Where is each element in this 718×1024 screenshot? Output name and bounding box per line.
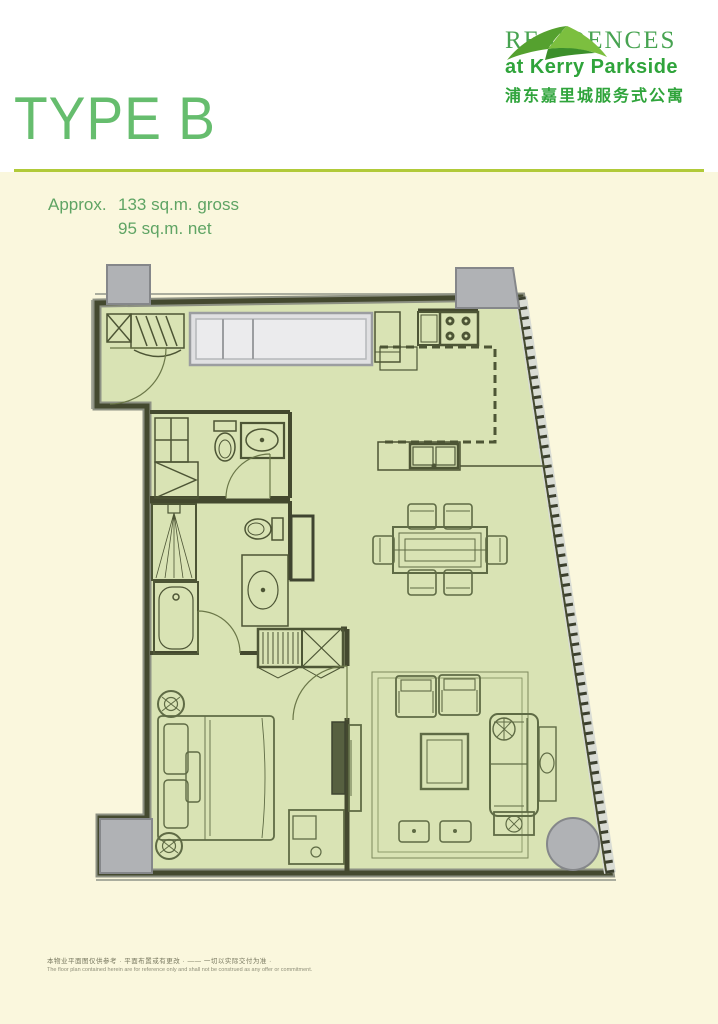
disclaimer-english: The floor plan contained herein are for … <box>47 967 312 973</box>
wardrobe <box>190 313 372 365</box>
column-round <box>547 818 599 870</box>
column-top-right <box>456 268 519 308</box>
floor-plan <box>0 0 718 1024</box>
column-bottom-left <box>100 819 152 873</box>
disclaimer-chinese: 本物业平面图仅供参考 · 平面布置或有更改 · —— 一切以实际交付为准 · <box>47 955 312 965</box>
disclaimer: 本物业平面图仅供参考 · 平面布置或有更改 · —— 一切以实际交付为准 · T… <box>47 955 312 973</box>
tv-console <box>332 722 345 794</box>
column-top-left <box>107 265 150 304</box>
